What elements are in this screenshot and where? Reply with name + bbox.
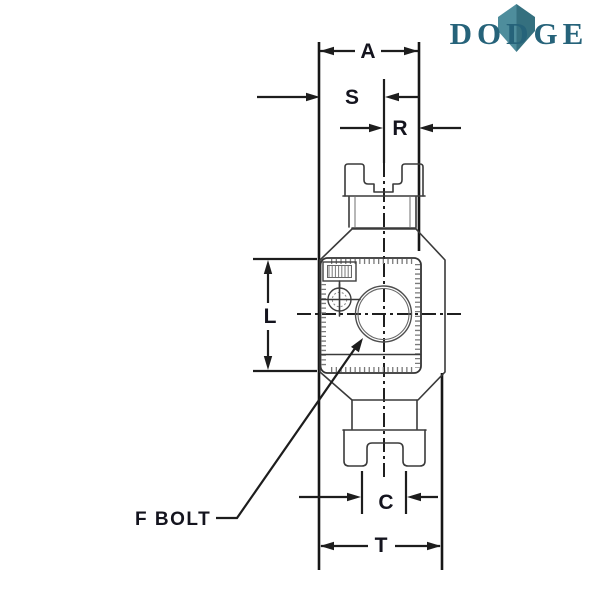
dim-label-s: S: [345, 86, 359, 109]
arrowhead-a-left: [320, 47, 334, 55]
arrowhead-c-left: [347, 493, 361, 501]
arrowhead-r-left: [369, 124, 383, 132]
dimension-t: T: [320, 534, 441, 557]
arrowhead-t-right: [427, 542, 441, 550]
dim-label-a: A: [360, 40, 375, 63]
f-bolt-label: F BOLT: [135, 509, 211, 530]
dimension-r: R: [340, 117, 461, 140]
arrowhead-l-top: [264, 260, 272, 274]
dim-label-t: T: [375, 534, 388, 557]
grease-fitting-pad: [323, 262, 356, 281]
arrowhead-r-right: [419, 124, 433, 132]
arrowhead-t-left: [320, 542, 334, 550]
dodge-logo: DODGE: [450, 4, 589, 52]
dimension-a: A: [320, 40, 418, 63]
arrowhead-l-bottom: [264, 356, 272, 370]
dim-label-r: R: [392, 117, 407, 140]
arrowhead-a-right: [404, 47, 418, 55]
dim-label-l: L: [264, 305, 277, 328]
dimension-l: L: [264, 260, 277, 370]
dim-label-c: C: [378, 491, 393, 514]
hanger-bearing-dimension-diagram: A S R L C T F BOLT: [0, 0, 600, 600]
dimension-s: S: [257, 86, 419, 109]
technical-drawing-canvas: A S R L C T F BOLT: [0, 0, 600, 600]
arrowhead-c-right: [407, 493, 421, 501]
f-bolt-callout: F BOLT: [135, 338, 363, 530]
extension-lines: [253, 42, 442, 570]
logo-wordmark: DODGE: [450, 16, 589, 51]
arrowhead-s-right: [385, 93, 399, 101]
